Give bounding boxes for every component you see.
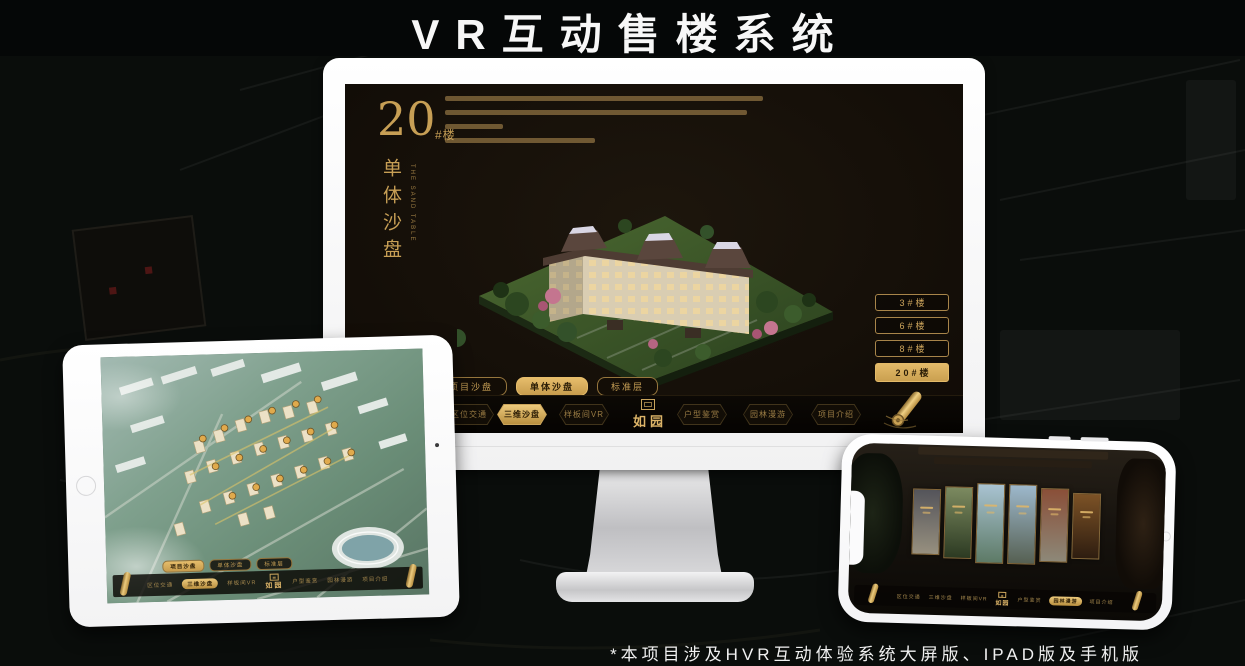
nav-item-floorplans[interactable]: 户型鉴赏 (1017, 596, 1041, 604)
monitor-stand-neck (586, 470, 722, 576)
camera-dot-icon (435, 443, 439, 447)
seal-icon (999, 591, 1007, 597)
subtitle-vertical: 单体沙盘 (378, 158, 405, 266)
nav-item-floorplans[interactable]: 户型鉴赏 (292, 576, 318, 585)
phone-screen: 区位交通 三维沙盘 样板间VR 如园 户型鉴赏 园林漫游 项目介绍 (848, 443, 1167, 622)
tab-standard-floor[interactable]: 标准层 (597, 377, 658, 396)
floor-button-8[interactable]: 8#楼 (875, 340, 949, 357)
gallery-panel-strip (911, 478, 1101, 569)
nav-item-floorplans[interactable]: 户型鉴赏 (673, 404, 731, 425)
nav-item-location-traffic[interactable]: 区位交通 (897, 592, 921, 600)
intro-paragraph (445, 96, 775, 143)
scroll-handle-icon[interactable] (868, 583, 879, 605)
gallery-panel-autumn-scene[interactable] (1039, 488, 1069, 563)
tablet-tab-standard-floor[interactable]: 标准层 (256, 557, 292, 570)
tab-single-sandtable[interactable]: 单体沙盘 (516, 377, 588, 396)
home-button[interactable] (76, 476, 97, 497)
seal-icon (270, 573, 279, 580)
floor-button-3[interactable]: 3#楼 (875, 294, 949, 311)
nav-item-project-intro[interactable]: 项目介绍 (362, 574, 388, 583)
poster-footnote: *本项目涉及HVR互动体验系统大屏版、IPAD版及手机版 (610, 640, 1143, 665)
nav-item-garden-roam[interactable]: 园林漫游 (739, 404, 797, 425)
power-button[interactable] (1081, 437, 1109, 442)
nav-item-location-traffic[interactable]: 区位交通 (147, 580, 173, 589)
view-tab-group: 项目沙盘 单体沙盘 标准层 (435, 377, 658, 396)
plaque-seal-mark (145, 266, 153, 274)
background-photo-strip (1000, 330, 1180, 420)
gallery-panel-courtyard[interactable] (943, 486, 973, 559)
phone-nav-bar: 区位交通 三维沙盘 样板间VR 如园 户型鉴赏 园林漫游 项目介绍 (854, 585, 1156, 613)
nav-item-showroom-vr[interactable]: 样板间VR (227, 578, 256, 587)
tablet-screen: 项目沙盘 单体沙盘 标准层 区位交通 三维沙盘 样板间VR 如园 户型鉴赏 园林… (100, 348, 429, 603)
poster-title: VR互动售楼系统 (0, 1, 1245, 62)
intro-text-line (445, 124, 503, 129)
building-number: 20 (377, 96, 436, 142)
nav-item-garden-roam[interactable]: 园林漫游 (1049, 596, 1081, 606)
scroll-handle-icon[interactable] (404, 564, 417, 590)
tablet-tab-single-sandtable[interactable]: 单体沙盘 (209, 558, 251, 571)
building-render (457, 162, 853, 394)
gallery-panel-ink-sketch[interactable] (911, 488, 941, 555)
brand-logo[interactable]: 如园 (624, 399, 672, 430)
phone-mockup: 区位交通 三维沙盘 样板间VR 如园 户型鉴赏 园林漫游 项目介绍 (837, 433, 1176, 630)
gallery-panel-interior-shelf[interactable] (1071, 493, 1101, 560)
wall-decor (1114, 458, 1166, 589)
tablet-mockup: 项目沙盘 单体沙盘 标准层 区位交通 三维沙盘 样板间VR 如园 户型鉴赏 园林… (62, 335, 460, 628)
nav-item-project-intro[interactable]: 项目介绍 (807, 404, 865, 425)
floor-button-20[interactable]: 20#楼 (875, 363, 949, 382)
floor-button-6[interactable]: 6#楼 (875, 317, 949, 334)
volume-button[interactable] (1049, 436, 1071, 441)
nav-item-project-intro[interactable]: 项目介绍 (1089, 598, 1113, 606)
brand-logo[interactable]: 如园 (265, 573, 283, 590)
brand-logo[interactable]: 如园 (995, 591, 1009, 606)
scroll-handle-icon[interactable] (1132, 591, 1143, 613)
nav-item-showroom-vr[interactable]: 样板间VR (555, 404, 613, 425)
seal-icon (641, 399, 655, 410)
nav-item-garden-roam[interactable]: 园林漫游 (327, 575, 353, 584)
phone-notch (848, 491, 865, 565)
tablet-tab-project-sandtable[interactable]: 项目沙盘 (162, 560, 204, 573)
gallery-panel-tower-render[interactable] (1007, 484, 1037, 565)
floor-button-group: 3#楼 6#楼 8#楼 20#楼 (875, 294, 949, 388)
nav-item-3d-sandtable[interactable]: 三维沙盘 (929, 593, 953, 601)
intro-text-line (445, 96, 763, 101)
monitor-stand-base (556, 572, 754, 602)
nav-item-3d-sandtable[interactable]: 三维沙盘 (182, 578, 218, 589)
intro-text-line (445, 110, 747, 115)
plaque-seal-mark (109, 287, 117, 295)
nav-item-3d-sandtable[interactable]: 三维沙盘 (493, 404, 551, 425)
subtitle-english: THE SAND TABLE (409, 164, 415, 242)
scroll-handle-icon[interactable] (118, 572, 131, 598)
gallery-panel-sky-render[interactable] (975, 483, 1005, 564)
nav-item-showroom-vr[interactable]: 样板间VR (961, 594, 988, 602)
background-photo-strip (1186, 80, 1236, 200)
intro-text-line (445, 138, 595, 143)
scroll-handle-icon[interactable] (881, 386, 931, 433)
background-plaque (72, 215, 207, 341)
